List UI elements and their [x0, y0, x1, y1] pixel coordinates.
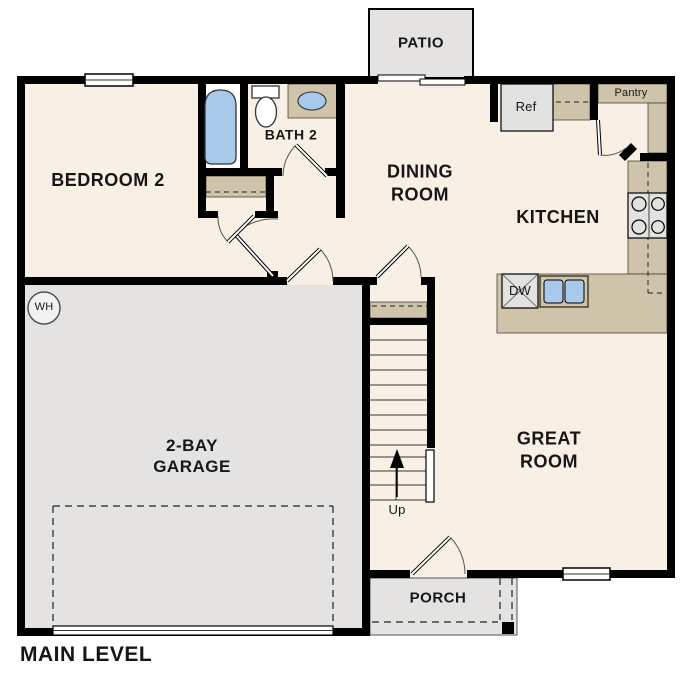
stair-railing: [426, 450, 434, 502]
bathtub-icon: [205, 90, 236, 164]
room-label-porch: PORCH: [410, 590, 467, 609]
pantry-shelf-side: [648, 103, 667, 153]
floor-plan: PATIO BEDROOM 2 BATH 2 DINING ROOM KITCH…: [0, 0, 687, 687]
label-wh: WH: [35, 301, 54, 315]
garage-door: [53, 626, 333, 635]
bath-sink-icon: [298, 92, 326, 110]
room-label-dining-line2: ROOM: [387, 183, 453, 206]
room-label-bedroom2: BEDROOM 2: [51, 169, 165, 192]
bedroom-window: [85, 74, 133, 86]
room-label-great-line1: GREAT: [517, 428, 581, 451]
room-label-patio: PATIO: [398, 35, 444, 54]
greatroom-window: [563, 568, 610, 580]
bedroom-closet-shelf: [206, 176, 266, 197]
room-label-dining: DINING ROOM: [387, 161, 453, 206]
room-label-garage-line1: 2-BAY: [153, 435, 231, 456]
label-pantry: Pantry: [615, 87, 648, 101]
floor-plan-canvas: [0, 0, 687, 687]
room-label-garage-line2: GARAGE: [153, 456, 231, 477]
porch-post: [502, 622, 514, 634]
range-icon: [628, 193, 667, 238]
plan-title: MAIN LEVEL: [20, 642, 152, 668]
room-label-dining-line1: DINING: [387, 161, 453, 184]
kitchen-sink-icon: [540, 276, 588, 307]
entry-closet-shelf: [370, 302, 427, 318]
room-label-kitchen: KITCHEN: [516, 206, 600, 229]
label-up: Up: [388, 502, 405, 518]
label-ref: Ref: [516, 99, 537, 115]
room-label-bath2: BATH 2: [265, 126, 318, 144]
room-label-great: GREAT ROOM: [517, 428, 581, 473]
label-dw: DW: [509, 283, 531, 299]
room-label-great-line2: ROOM: [517, 450, 581, 473]
room-label-garage: 2-BAY GARAGE: [153, 435, 231, 478]
